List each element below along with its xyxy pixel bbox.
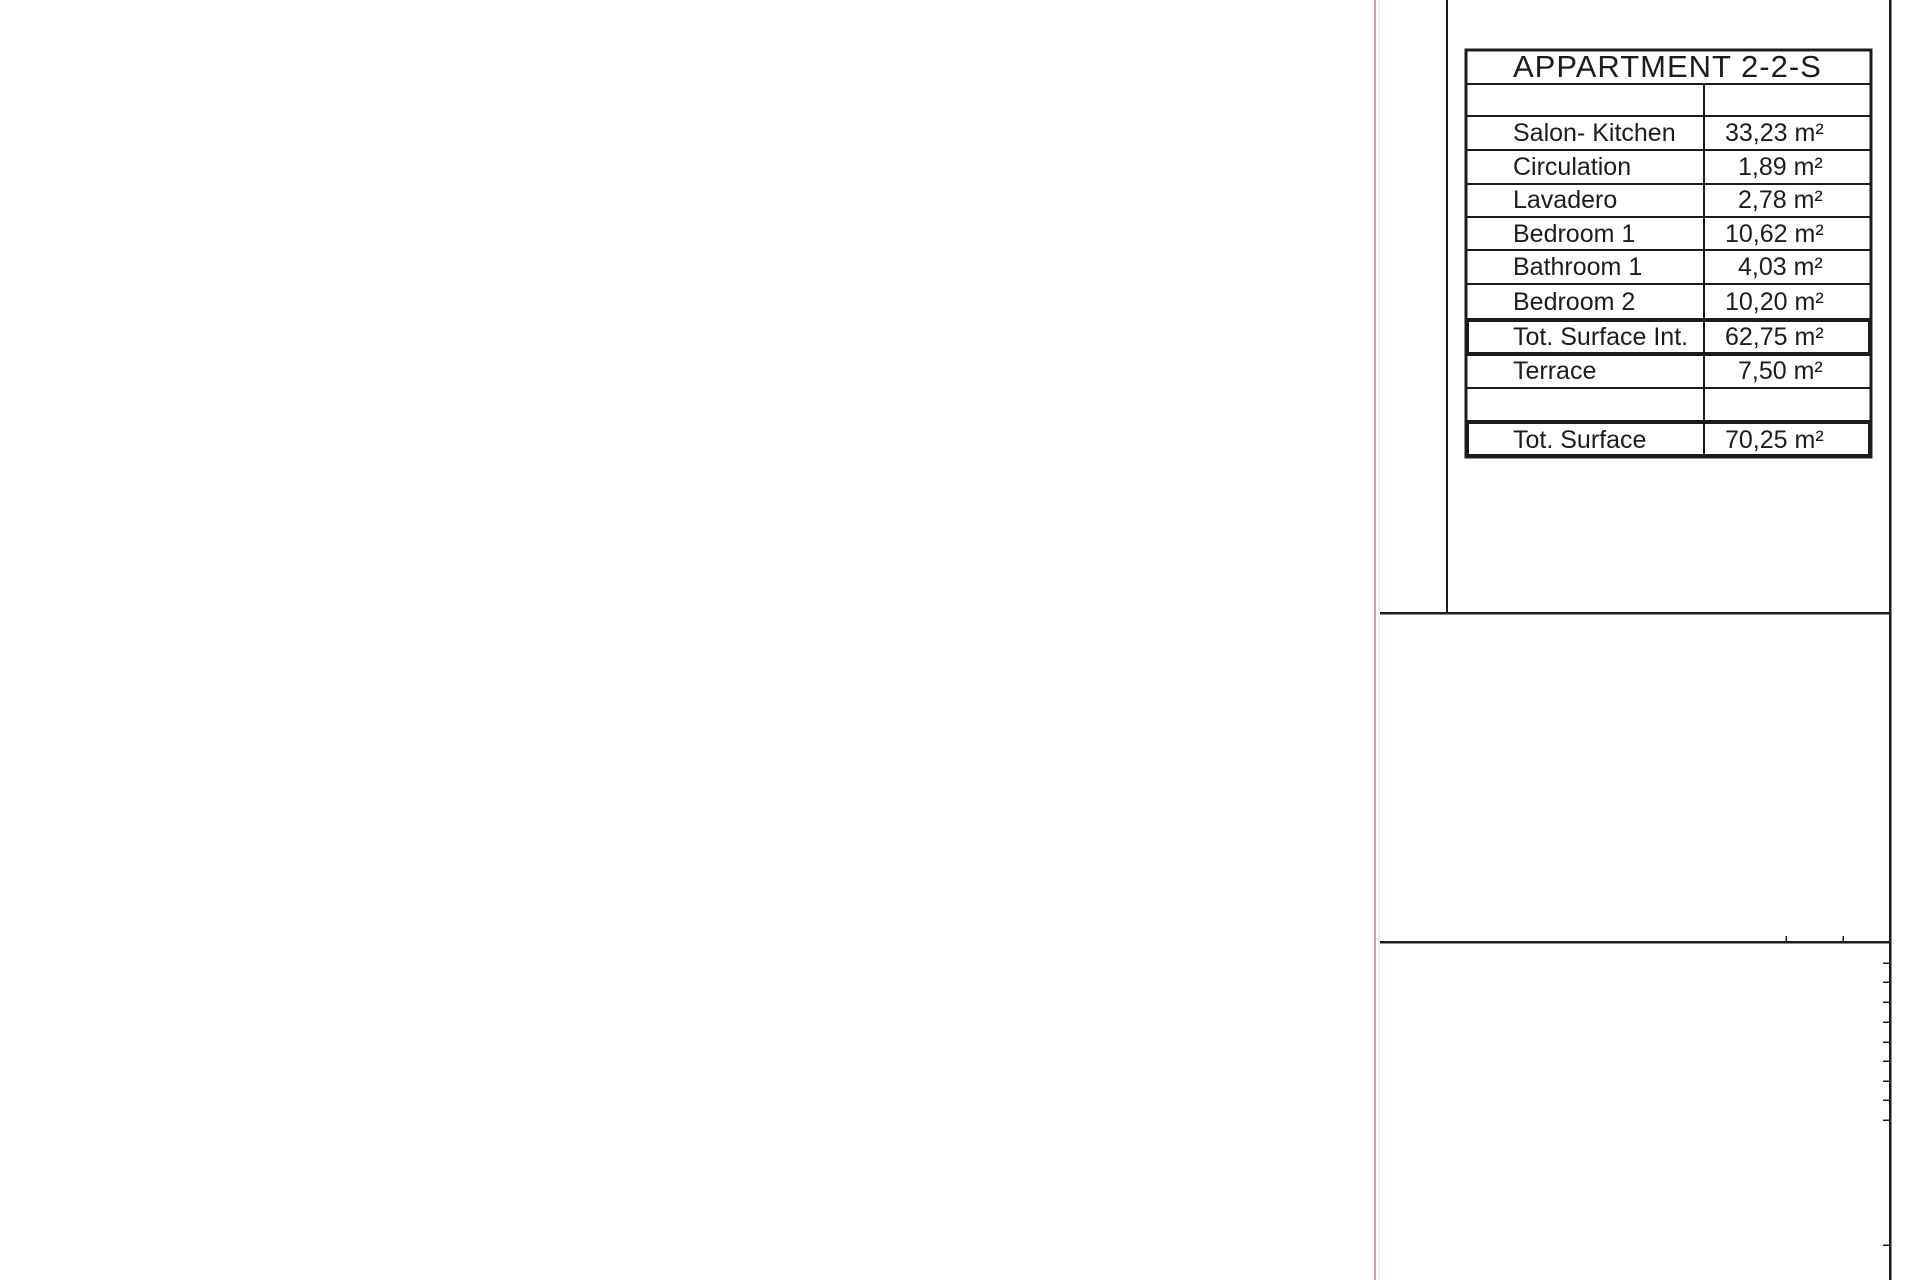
svg-text:Tot. Surface Int.: Tot. Surface Int. [1513, 323, 1688, 351]
svg-text:Tot. Surface: Tot. Surface [1513, 426, 1646, 454]
svg-text:10,20 m²: 10,20 m² [1725, 288, 1824, 316]
svg-text:2,78 m²: 2,78 m² [1738, 186, 1823, 214]
svg-text:Lavadero: Lavadero [1513, 186, 1617, 214]
svg-text:Bathroom 1: Bathroom 1 [1513, 253, 1642, 281]
svg-text:APPARTMENT 2-2-S: APPARTMENT 2-2-S [1513, 49, 1822, 84]
svg-text:33,23 m²: 33,23 m² [1725, 119, 1824, 147]
svg-text:Circulation: Circulation [1513, 153, 1631, 181]
svg-text:4,03 m²: 4,03 m² [1738, 253, 1823, 281]
svg-text:Salon- Kitchen: Salon- Kitchen [1513, 119, 1676, 147]
svg-text:Bedroom 1: Bedroom 1 [1513, 220, 1635, 248]
svg-text:Bedroom 2: Bedroom 2 [1513, 288, 1635, 316]
svg-text:70,25 m²: 70,25 m² [1725, 426, 1824, 454]
svg-text:10,62 m²: 10,62 m² [1725, 220, 1824, 248]
svg-text:7,50 m²: 7,50 m² [1738, 357, 1823, 385]
svg-text:62,75 m²: 62,75 m² [1725, 323, 1824, 351]
svg-text:1,89 m²: 1,89 m² [1738, 153, 1823, 181]
svg-text:Terrace: Terrace [1513, 357, 1596, 385]
